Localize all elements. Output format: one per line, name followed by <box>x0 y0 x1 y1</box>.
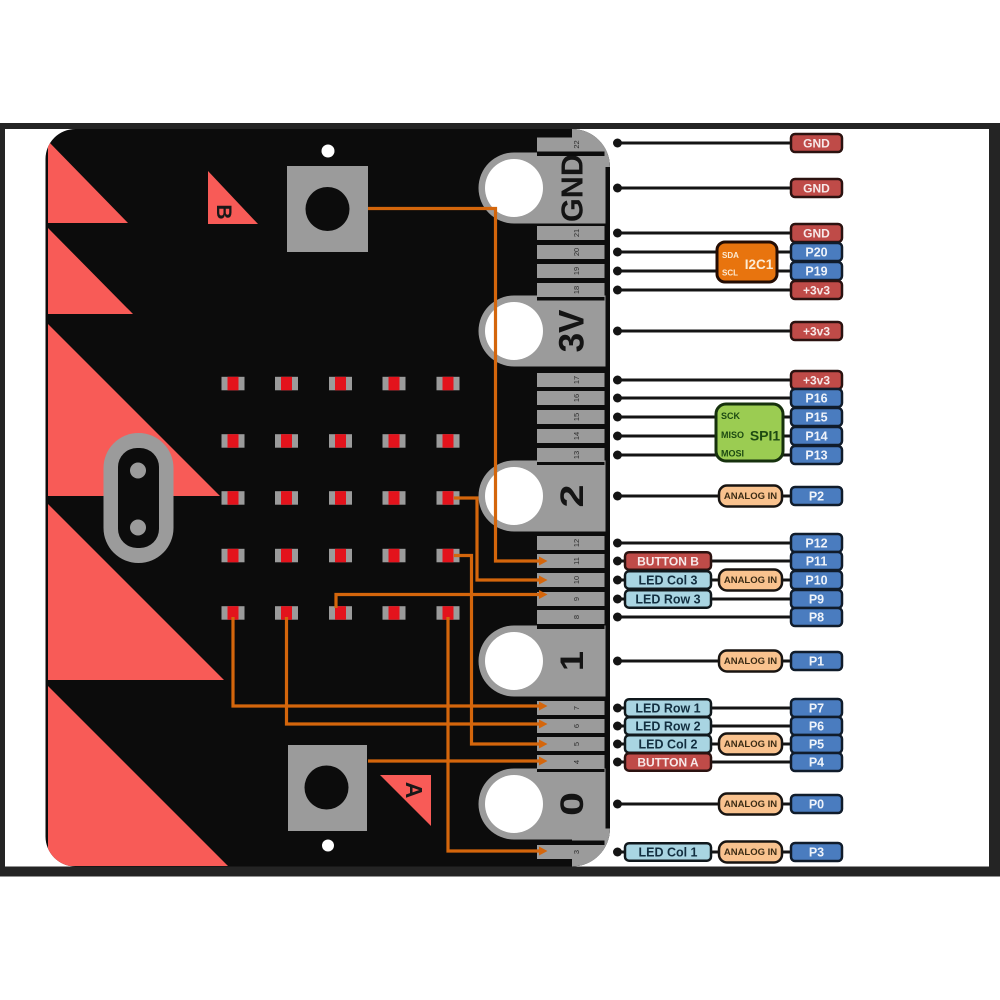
svg-text:5: 5 <box>572 742 581 746</box>
svg-text:GND: GND <box>803 182 830 196</box>
svg-text:19: 19 <box>572 267 581 275</box>
svg-text:P9: P9 <box>809 593 824 607</box>
svg-text:P6: P6 <box>809 720 824 734</box>
svg-text:P5: P5 <box>809 738 824 752</box>
svg-text:ANALOG IN: ANALOG IN <box>724 799 777 810</box>
svg-text:SPI1: SPI1 <box>750 428 781 444</box>
svg-text:P11: P11 <box>806 555 828 569</box>
svg-text:ANALOG IN: ANALOG IN <box>724 491 777 502</box>
svg-text:P16: P16 <box>805 392 827 406</box>
svg-text:11: 11 <box>572 557 581 565</box>
svg-text:LED Row 1: LED Row 1 <box>635 702 700 716</box>
svg-text:ANALOG IN: ANALOG IN <box>724 575 777 586</box>
svg-text:3: 3 <box>572 850 581 854</box>
svg-text:P0: P0 <box>809 798 824 812</box>
svg-text:P7: P7 <box>809 702 824 716</box>
svg-text:LED Row 3: LED Row 3 <box>635 593 700 607</box>
svg-text:P20: P20 <box>805 246 827 260</box>
svg-text:2: 2 <box>554 485 590 508</box>
svg-text:LED Col 2: LED Col 2 <box>638 738 697 752</box>
svg-text:8: 8 <box>572 615 581 619</box>
svg-text:P19: P19 <box>805 265 827 279</box>
svg-text:P12: P12 <box>805 537 827 551</box>
svg-text:10: 10 <box>572 576 581 584</box>
svg-text:BUTTON A: BUTTON A <box>637 756 699 770</box>
svg-text:ANALOG IN: ANALOG IN <box>724 847 777 858</box>
svg-text:14: 14 <box>572 432 581 440</box>
svg-text:21: 21 <box>572 229 581 237</box>
svg-text:SCL: SCL <box>722 269 738 278</box>
svg-text:P13: P13 <box>805 449 827 463</box>
svg-text:ANALOG IN: ANALOG IN <box>724 656 777 667</box>
svg-text:P4: P4 <box>809 756 824 770</box>
svg-text:17: 17 <box>572 376 581 384</box>
svg-text:+3v3: +3v3 <box>803 325 830 339</box>
svg-text:4: 4 <box>572 760 581 764</box>
svg-text:20: 20 <box>572 248 581 256</box>
svg-text:SCK: SCK <box>721 411 741 421</box>
svg-text:6: 6 <box>572 724 581 728</box>
svg-text:B: B <box>212 204 235 219</box>
svg-text:3V: 3V <box>553 309 592 352</box>
svg-text:9: 9 <box>572 597 581 601</box>
svg-text:LED Row 2: LED Row 2 <box>635 720 700 734</box>
svg-text:P10: P10 <box>805 574 827 588</box>
svg-text:P2: P2 <box>809 490 824 504</box>
svg-text:ANALOG IN: ANALOG IN <box>724 739 777 750</box>
svg-text:LED Col 3: LED Col 3 <box>638 574 697 588</box>
svg-text:1: 1 <box>554 651 590 671</box>
svg-text:P8: P8 <box>809 611 824 625</box>
svg-text:LED Col 1: LED Col 1 <box>638 846 697 860</box>
svg-text:GND: GND <box>803 137 830 151</box>
svg-text:MOSI: MOSI <box>721 449 744 459</box>
svg-text:+3v3: +3v3 <box>803 284 830 298</box>
svg-text:13: 13 <box>572 451 581 459</box>
svg-text:22: 22 <box>572 140 581 148</box>
svg-text:18: 18 <box>572 286 581 294</box>
svg-text:15: 15 <box>572 413 581 421</box>
svg-text:+3v3: +3v3 <box>803 374 830 388</box>
svg-text:P15: P15 <box>805 411 827 425</box>
svg-text:SDA: SDA <box>722 251 739 260</box>
svg-text:GND: GND <box>803 227 830 241</box>
svg-text:A: A <box>401 782 427 799</box>
svg-text:I2C1: I2C1 <box>745 257 774 272</box>
svg-text:BUTTON B: BUTTON B <box>637 555 699 569</box>
svg-text:7: 7 <box>572 706 581 710</box>
svg-text:16: 16 <box>572 394 581 402</box>
svg-text:12: 12 <box>572 539 581 547</box>
svg-text:0: 0 <box>554 792 590 816</box>
svg-text:GND: GND <box>555 154 590 222</box>
svg-text:P14: P14 <box>805 430 827 444</box>
svg-text:MISO: MISO <box>721 430 744 440</box>
svg-text:P1: P1 <box>809 655 824 669</box>
svg-text:P3: P3 <box>809 846 824 860</box>
